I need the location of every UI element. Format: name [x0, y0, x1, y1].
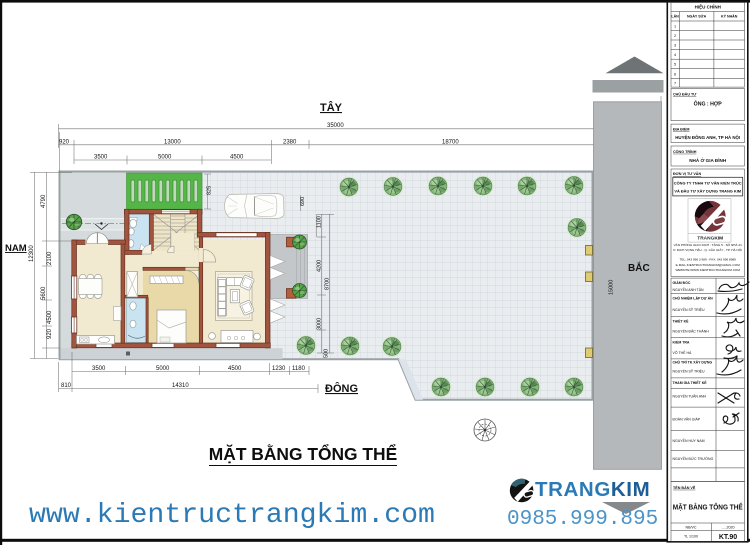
svg-text:7: 7: [674, 82, 676, 86]
svg-text:825: 825: [207, 186, 213, 195]
svg-text:3000: 3000: [317, 318, 323, 330]
svg-text:VĂN PHÒNG GIAO DỊCH : TẦNG 5 -: VĂN PHÒNG GIAO DỊCH : TẦNG 5 - SỐ NHÀ 21: [674, 242, 742, 247]
svg-text:4500: 4500: [47, 310, 53, 324]
svg-text:3: 3: [674, 44, 676, 48]
svg-text:THIẾT KẾ: THIẾT KẾ: [673, 318, 690, 323]
svg-text:ÔNG : HỢP: ÔNG : HỢP: [694, 100, 723, 108]
svg-text:WEBSITE:WWW.KIENTRUCTRANGKIM.C: WEBSITE:WWW.KIENTRUCTRANGKIM.COM: [675, 268, 740, 272]
svg-text:CÔNG TRÌNH: CÔNG TRÌNH: [673, 149, 697, 154]
svg-text:VÀ ĐẦU TƯ XÂY DỰNG TRANG KIM: VÀ ĐẦU TƯ XÂY DỰNG TRANG KIM: [674, 188, 741, 193]
svg-text:TRANGKIM: TRANGKIM: [697, 235, 723, 241]
svg-text:5: 5: [674, 63, 676, 67]
svg-text:THAM GIA THIẾT KẾ: THAM GIA THIẾT KẾ: [673, 380, 708, 385]
svg-text:15000: 15000: [609, 280, 615, 295]
svg-text:35000: 35000: [327, 123, 344, 129]
svg-text:500: 500: [324, 349, 330, 358]
svg-text:4500: 4500: [230, 155, 244, 161]
svg-text:5600: 5600: [41, 286, 47, 300]
svg-text:690: 690: [300, 197, 306, 206]
svg-text:12300: 12300: [29, 245, 35, 262]
svg-text:TEL: 043 996 3 989 - FAX: 04: TEL: 043 996 3 989 - FAX: 043 996 8989: [679, 258, 736, 262]
svg-text:CHỦ NHIỆM LẬP DỰ ÁN: CHỦ NHIỆM LẬP DỰ ÁN: [673, 296, 714, 301]
svg-text:CÔNG TY TNHH TƯ VẤN KIẾN TRÚC: CÔNG TY TNHH TƯ VẤN KIẾN TRÚC: [674, 181, 742, 186]
svg-text:TÊN BẢN VẼ: TÊN BẢN VẼ: [673, 485, 696, 490]
svg-text:TÂY: TÂY: [320, 101, 343, 114]
svg-text:CHỦ TRÌ TK XÂY DỰNG: CHỦ TRÌ TK XÂY DỰNG: [673, 360, 713, 365]
svg-text:1: 1: [674, 25, 676, 29]
svg-text:18700: 18700: [442, 139, 459, 145]
svg-text:3500: 3500: [92, 366, 106, 372]
svg-text:ĐÔNG: ĐÔNG: [325, 382, 358, 395]
svg-text:4: 4: [674, 53, 676, 57]
svg-text:CHỦ ĐẦU TƯ: CHỦ ĐẦU TƯ: [673, 92, 697, 97]
svg-text:3500: 3500: [94, 155, 108, 161]
svg-text:ĐOÀN VĂN GIÁP: ĐOÀN VĂN GIÁP: [673, 418, 701, 422]
svg-text:KT.90: KT.90: [719, 534, 737, 541]
svg-text:KÝ NHẬN: KÝ NHẬN: [721, 14, 738, 19]
svg-text:2: 2: [674, 34, 676, 38]
svg-text:NGUYỄN ĐỨC TRƯỜNG: NGUYỄN ĐỨC TRƯỜNG: [673, 456, 714, 461]
svg-text:BẮC: BẮC: [628, 261, 650, 274]
svg-text:4200: 4200: [317, 260, 323, 272]
svg-text:NGUYỄN ĐẮC THÀNH: NGUYỄN ĐẮC THÀNH: [673, 328, 710, 333]
svg-text:ĐỊA ĐIỂM: ĐỊA ĐIỂM: [673, 127, 689, 132]
svg-text:1230: 1230: [272, 366, 286, 372]
svg-text:TL 1/100: TL 1/100: [684, 535, 698, 539]
svg-text:5000: 5000: [158, 155, 172, 161]
svg-text:2380: 2380: [283, 139, 297, 145]
svg-text:NHÀ Ở GIA ĐÌNH: NHÀ Ở GIA ĐÌNH: [689, 156, 727, 163]
svg-text:4790: 4790: [41, 194, 47, 208]
svg-text:1100: 1100: [317, 216, 323, 228]
svg-text:P. DỊCH VỌNG HẬU - Q. CẦU GIẤY: P. DỊCH VỌNG HẬU - Q. CẦU GIẤY - TP. HÀ …: [673, 247, 742, 252]
svg-text:13000: 13000: [164, 139, 181, 145]
svg-text:LẦN: LẦN: [671, 15, 679, 19]
svg-text:810: 810: [61, 383, 72, 389]
svg-text:NGUYỄN TUẤN ANH: NGUYỄN TUẤN ANH: [673, 394, 707, 399]
svg-text:NGÀY SỬA: NGÀY SỬA: [687, 14, 707, 19]
svg-text:4500: 4500: [228, 366, 242, 372]
svg-text:NGUYỄN ANH TÂN: NGUYỄN ANH TÂN: [673, 287, 705, 292]
svg-text:2100: 2100: [47, 251, 53, 265]
svg-text:.....2020: .....2020: [722, 526, 735, 530]
svg-text:NAM: NAM: [5, 243, 27, 254]
svg-text:14310: 14310: [172, 383, 189, 389]
svg-text:HIỆU CHỈNH: HIỆU CHỈNH: [695, 3, 721, 10]
svg-text:NGUYỄN SỸ TRIỆU: NGUYỄN SỸ TRIỆU: [673, 368, 705, 373]
svg-text:MẶT BẰNG TỔNG THỂ: MẶT BẰNG TỔNG THỂ: [673, 503, 743, 512]
svg-text:KIỂM TRA: KIỂM TRA: [673, 339, 690, 344]
svg-text:NGUYỄN HUY NAM: NGUYỄN HUY NAM: [673, 438, 705, 443]
svg-text:VÕ THẾ HÀ: VÕ THẾ HÀ: [673, 350, 692, 355]
svg-text:6: 6: [674, 72, 676, 76]
svg-text:8700: 8700: [325, 278, 331, 290]
svg-text:HUYỆN ĐÔNG ANH, TP HÀ NỘI: HUYỆN ĐÔNG ANH, TP HÀ NỘI: [675, 135, 740, 140]
svg-text:NB/VC: NB/VC: [686, 526, 697, 530]
svg-text:920: 920: [59, 139, 70, 145]
svg-text:ĐƠN VỊ TƯ VẤN: ĐƠN VỊ TƯ VẤN: [673, 172, 701, 176]
svg-text:5000: 5000: [156, 366, 170, 372]
svg-text:GIÁM ĐỐC: GIÁM ĐỐC: [673, 280, 691, 285]
svg-text:E-MAIL:KIENTRUCTRANGKIM@GMAIL.: E-MAIL:KIENTRUCTRANGKIM@GMAIL.COM: [676, 263, 741, 267]
svg-text:1180: 1180: [292, 366, 306, 372]
svg-text:NGUYỄN SỸ TRIỆU: NGUYỄN SỸ TRIỆU: [673, 307, 705, 312]
svg-text:920: 920: [47, 328, 53, 339]
